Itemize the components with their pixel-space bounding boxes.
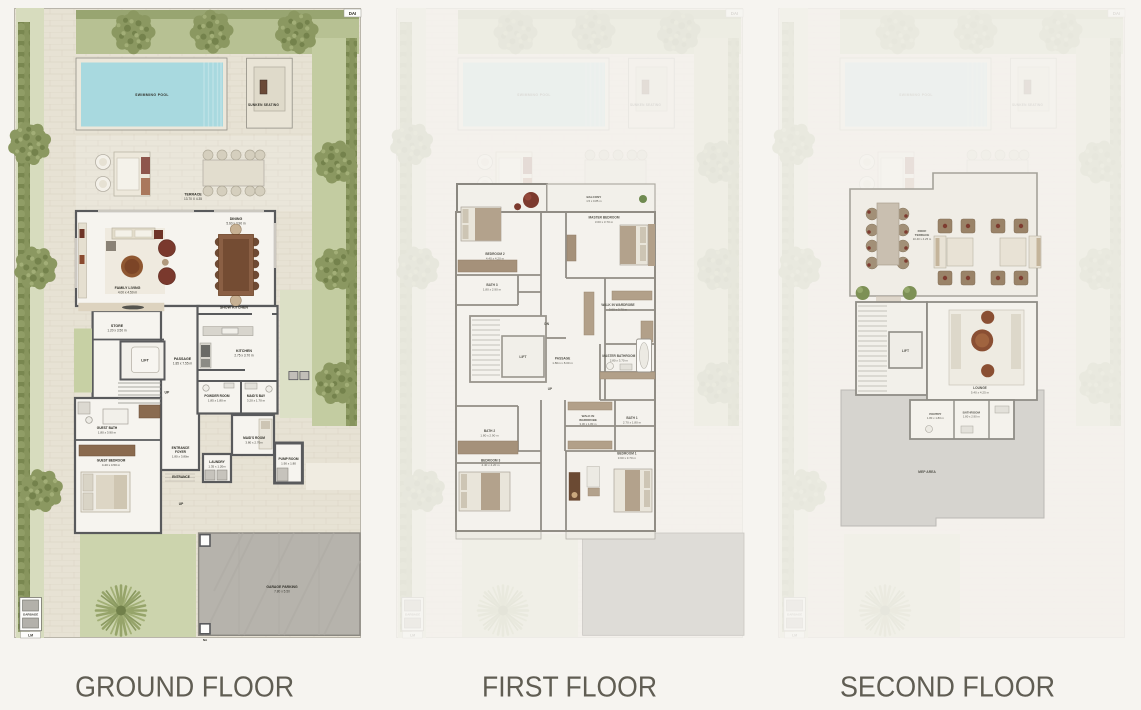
svg-text:NA: NA [203, 638, 208, 642]
svg-text:MAID'S ROOM: MAID'S ROOM [243, 436, 265, 440]
svg-text:1.35 x 1.20m: 1.35 x 1.20m [208, 465, 226, 469]
svg-text:3.60 x 3.70 m: 3.60 x 3.70 m [595, 220, 614, 224]
svg-text:LIFT: LIFT [902, 349, 910, 353]
svg-text:1.80m x 8.00 m: 1.80m x 8.00 m [552, 361, 573, 365]
svg-text:MASTER BATHROOM: MASTER BATHROOM [602, 354, 635, 358]
svg-text:10.40 x 4.25 m: 10.40 x 4.25 m [913, 237, 932, 241]
svg-text:ENTRANCE: ENTRANCE [172, 475, 190, 479]
svg-text:FAMILY LIVING: FAMILY LIVING [115, 286, 141, 290]
svg-text:3.80 x 2.70m: 3.80 x 2.70m [245, 441, 263, 445]
svg-text:STORE: STORE [111, 324, 124, 328]
svg-text:LAUNDRY: LAUNDRY [209, 460, 225, 464]
svg-text:GUEST BEDROOM: GUEST BEDROOM [97, 459, 126, 463]
svg-text:1.80 x 2.90 m: 1.80 x 2.90 m [963, 415, 981, 419]
svg-text:DINING: DINING [230, 217, 243, 221]
svg-text:SHOW KITCHEN: SHOW KITCHEN [220, 306, 249, 310]
svg-text:WALK IN WARDROBE: WALK IN WARDROBE [601, 303, 634, 307]
svg-text:BATH 1: BATH 1 [626, 416, 638, 420]
svg-text:POWDER ROOM: POWDER ROOM [204, 394, 229, 398]
svg-text:DN: DN [544, 322, 549, 326]
svg-text:BEDROOM 1: BEDROOM 1 [617, 452, 637, 456]
svg-text:TERRACE: TERRACE [184, 193, 202, 197]
svg-text:4.40 x 4.50 m: 4.40 x 4.50 m [102, 463, 121, 467]
svg-text:1.80 x 2.90 m: 1.80 x 2.90 m [480, 434, 499, 438]
svg-text:KITCHEN: KITCHEN [236, 349, 252, 353]
svg-text:1.80 x 3.90 m: 1.80 x 3.90 m [98, 431, 117, 435]
svg-text:1.90 x 1.80: 1.90 x 1.80 [281, 462, 296, 466]
svg-text:1.80 x 1.80 m: 1.80 x 1.80 m [927, 416, 945, 420]
svg-text:4.00 x 4.50 m: 4.00 x 4.50 m [118, 291, 138, 295]
svg-text:3.60 x 3.70 m: 3.60 x 3.70 m [609, 308, 628, 312]
svg-text:3.30 x 1.80 m: 3.30 x 1.80 m [580, 422, 598, 426]
svg-text:BEDROOM 2: BEDROOM 2 [485, 252, 505, 256]
svg-text:GARAGE PARKING: GARAGE PARKING [266, 585, 298, 589]
svg-text:2.70 x 1.80 m: 2.70 x 1.80 m [623, 421, 642, 425]
svg-text:FIRST FLOOR: FIRST FLOOR [482, 672, 657, 704]
svg-text:5.40 x 4.25 m: 5.40 x 4.25 m [971, 391, 990, 395]
svg-text:1.5 x 0.85 m: 1.5 x 0.85 m [586, 199, 602, 203]
svg-text:3.20 x 1.70 m: 3.20 x 1.70 m [247, 399, 266, 403]
svg-text:7.80 x 5.50: 7.80 x 5.50 [274, 590, 290, 594]
svg-text:BATH 2: BATH 2 [484, 429, 496, 433]
svg-text:LIFT: LIFT [141, 359, 149, 363]
svg-text:UP: UP [165, 391, 170, 395]
svg-text:4.40 x 4.20 m: 4.40 x 4.20 m [482, 463, 501, 467]
svg-text:1.85 x 7.55 m: 1.85 x 7.55 m [173, 362, 193, 366]
svg-text:4.40 x 4.20 m: 4.40 x 4.20 m [486, 257, 505, 261]
svg-text:MASTER BEDROOM: MASTER BEDROOM [589, 216, 620, 220]
svg-text:LIFT: LIFT [519, 355, 527, 359]
svg-text:PASSAGE: PASSAGE [174, 357, 192, 361]
svg-text:PASSAGE: PASSAGE [555, 357, 570, 361]
svg-text:1.80 x 2.90 m: 1.80 x 2.90 m [483, 288, 502, 292]
svg-text:PUMP ROOM: PUMP ROOM [279, 457, 299, 461]
svg-text:13.70 X 4.35: 13.70 X 4.35 [184, 197, 202, 201]
svg-text:1.80 x 3.80m: 1.80 x 3.80m [172, 455, 190, 459]
svg-text:1.85 x 1.80 m: 1.85 x 1.80 m [208, 399, 227, 403]
svg-text:3.60 x 3.70 m: 3.60 x 3.70 m [618, 456, 637, 460]
svg-text:2.80 x 3.70 m: 2.80 x 3.70 m [610, 359, 629, 363]
svg-text:LOUNGE: LOUNGE [973, 386, 987, 390]
svg-text:GROUND FLOOR: GROUND FLOOR [75, 672, 294, 704]
svg-text:2.75 x 3.70 m: 2.75 x 3.70 m [234, 354, 254, 358]
svg-text:SECOND FLOOR: SECOND FLOOR [840, 672, 1055, 704]
svg-text:1.20 x 3.50 m: 1.20 x 3.50 m [107, 329, 127, 333]
svg-text:MAID'S BAY: MAID'S BAY [247, 394, 266, 398]
svg-text:BATH 3: BATH 3 [486, 283, 498, 287]
svg-text:MEP AREA: MEP AREA [918, 470, 936, 474]
svg-text:FOYER: FOYER [175, 450, 187, 454]
svg-text:BEDROOM 3: BEDROOM 3 [481, 459, 501, 463]
svg-text:GUEST BATH: GUEST BATH [97, 426, 118, 430]
